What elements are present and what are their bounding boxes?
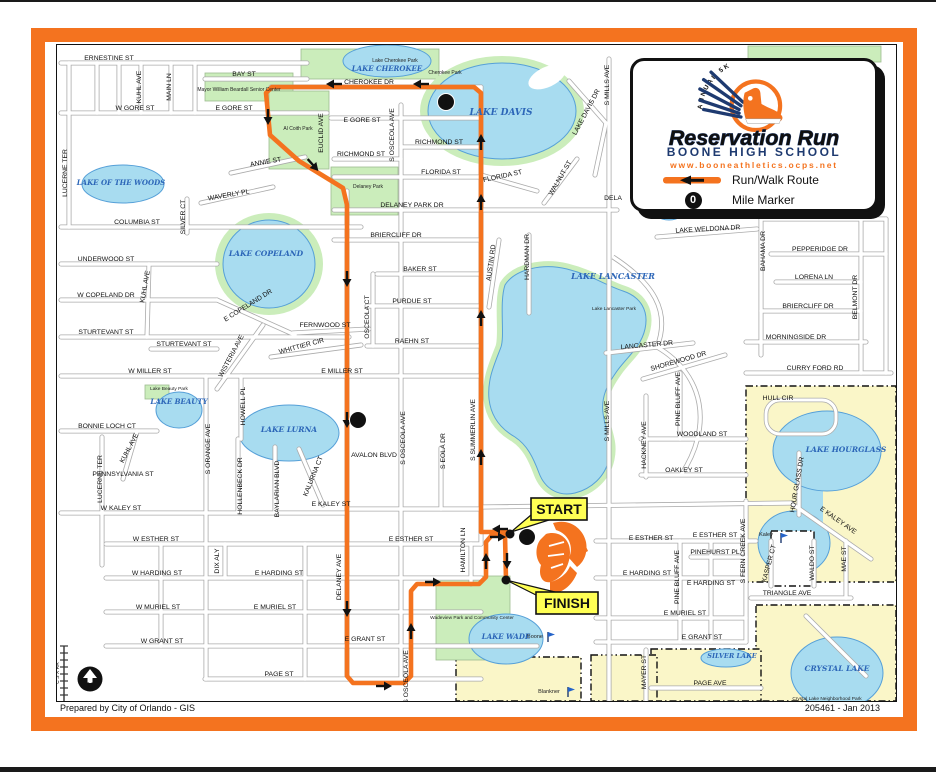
street-label: S ORANGE AVE [205, 423, 212, 474]
svg-text:Blankner: Blankner [538, 689, 560, 695]
street-label: PAGE AVE [694, 680, 727, 687]
trojan-mascot-icon [536, 522, 588, 594]
street-label: HARDMAN DR [524, 234, 531, 280]
street-label: BAHAMA DR [760, 231, 767, 271]
street-label: WALDO ST [809, 545, 816, 580]
street-label: PINE BLUFF AVE [674, 550, 681, 604]
street-label: Al Coith Park [283, 126, 313, 132]
street-label: W ESTHER ST [133, 536, 179, 543]
street-label: Mayor William Beardall Senior Center [197, 87, 281, 93]
street-label: DELA [604, 195, 622, 202]
street-label: KUHL AVE [136, 70, 143, 103]
street-label: S MILLS AVE [604, 64, 611, 105]
street-label: HOLLENBECK DR [237, 457, 244, 515]
svg-text:1: 1 [443, 98, 449, 109]
street-label: OSCEOLA CT [364, 295, 371, 338]
street-label: FLORIDA ST [421, 169, 461, 176]
street-label: RICHMOND ST [337, 151, 385, 158]
street-label: E MURIEL ST [664, 610, 706, 617]
street-label: COLUMBIA ST [114, 219, 160, 226]
street-label: E HARDING ST [255, 570, 303, 577]
footer-credit: Prepared by City of Orlando - GIS [60, 703, 195, 713]
street-label: STURTEVANT ST [78, 329, 133, 336]
street-label: FERNWOOD ST [300, 322, 351, 329]
street-label: E ESTHER ST [693, 532, 738, 539]
street-label: E MURIEL ST [254, 604, 296, 611]
svg-text:3: 3 [524, 533, 530, 544]
street-label: Lake Lancaster Park [592, 306, 637, 312]
street-label: DELANEY PARK DR [380, 202, 443, 209]
street-label: MAE ST [841, 546, 848, 571]
route-direction-arrow [477, 310, 486, 326]
svg-text:START: START [536, 501, 582, 517]
street-label: ANTIGUA DR [803, 211, 845, 218]
street-label: PINEHURST PL [690, 549, 740, 556]
street-label: W MILLER ST [128, 368, 171, 375]
legend-route-label: Run/Walk Route [732, 173, 819, 187]
street-label: TRIANGLE AVE [763, 590, 812, 597]
logo-school-name: BOONE HIGH SCHOOL [667, 145, 842, 159]
street-label: E HARDING ST [623, 570, 671, 577]
street-label: OAKLEY ST [665, 467, 703, 474]
route-direction-arrow [343, 601, 352, 617]
street-label: RAEHN ST [395, 338, 429, 345]
street-label: RICHMOND ST [415, 139, 463, 146]
street-label: LUCERNE TER [62, 149, 69, 197]
street-label: BAYLARIAN BLVD [274, 461, 281, 518]
street-label: E GRANT ST [345, 636, 386, 643]
street-label: LUCERNE TER [97, 455, 104, 503]
street-label: S SUMMERLIN AVE [470, 399, 477, 461]
route-direction-arrow [477, 449, 486, 465]
street-label: ERNESTINE ST [84, 55, 133, 62]
street-label: EUCLID AVE [318, 113, 325, 153]
street-label: DELANEY AVE [336, 553, 343, 600]
legend-marker-label: Mile Marker [732, 193, 795, 207]
lake-label: LAKE LANCASTER [570, 271, 655, 281]
svg-text:Kaley: Kaley [759, 532, 773, 538]
street-label: W MURIEL ST [136, 604, 180, 611]
street-label: S EOLA DR [440, 433, 447, 469]
street-label: CHEROKEE DR [344, 79, 394, 86]
street-label: HOWELL PL [240, 386, 247, 425]
street-label: BAKER ST [403, 266, 437, 273]
street-label: E GORE ST [215, 105, 252, 112]
street-label: WALNUT ST [548, 160, 574, 197]
svg-text:C S X RR: C S X RR [57, 662, 61, 684]
route-endpoint-dot [506, 530, 515, 539]
page-bottom-bar [0, 767, 936, 772]
street-label: S FERN CREEK AVE [740, 518, 747, 583]
street-label: W KALEY ST [101, 505, 142, 512]
legend-marker-row: 0 Mile Marker [654, 191, 854, 209]
legend-box: BHSAA ANNUAL 5K Reservation Run BOONE HI… [630, 58, 878, 212]
street-label: WAVERLY PL [207, 188, 250, 202]
north-arrow-icon: N [78, 667, 103, 692]
street-label: HAMILTON LN [460, 527, 467, 572]
street-label: BRIERCLIFF DR [782, 303, 833, 310]
page-top-line [0, 0, 936, 2]
street-label: E GRANT ST [682, 634, 723, 641]
lake-label: LAKE BEAUTY [149, 397, 208, 406]
route-direction-arrow [343, 271, 352, 287]
street-label: E ESTHER ST [629, 535, 674, 542]
street-label: DIX ALY [214, 548, 221, 574]
legend-route-row: Run/Walk Route [654, 172, 854, 190]
street-label: PURDUE ST [392, 298, 431, 305]
svg-text:N: N [87, 681, 94, 691]
svg-text:2: 2 [355, 416, 361, 427]
route-line-icon [654, 173, 732, 187]
street-label: E GORE ST [343, 117, 380, 124]
lake-label: LAKE LURNA [260, 425, 317, 434]
street-label: STURTEVANT ST [156, 341, 211, 348]
street-label: PEPPERIDGE DR [792, 246, 848, 253]
lake-label: LAKE WADE [481, 632, 531, 641]
lake-label: LAKE OF THE WOODS [76, 178, 166, 187]
street-label: CURRY FORD RD [787, 365, 844, 372]
footer-docid: 205461 - Jan 2013 [805, 703, 880, 713]
street-label: Delaney Park [353, 184, 384, 190]
logo-url: www.booneathletics.ocps.net [670, 160, 838, 170]
mile-marker-icon: 0 [685, 192, 702, 209]
street-label: WOODLAND ST [677, 431, 728, 438]
street-label: S MILLS AVE [604, 400, 611, 441]
street-label: W COPELAND DR [77, 292, 134, 299]
street-label: HACKNEY AVE [641, 421, 648, 469]
street-label: Crystal Lake Neighborhood Park [792, 696, 862, 701]
lake-lancaster [489, 267, 646, 494]
street-label: MAIN LN [166, 73, 173, 101]
school-flag-icon [548, 632, 555, 642]
street-label: E KALEY ST [312, 501, 351, 508]
street-label: W HARDING ST [132, 570, 182, 577]
street-label: S OSCEOLA AVE [400, 411, 407, 465]
route-endpoint-dot [502, 576, 511, 585]
street-label: BAY ST [232, 71, 256, 78]
lake-label: LAKE HOURGLASS [805, 445, 887, 454]
lake-label: LAKE COPELAND [228, 249, 304, 258]
street-label: S OSCEOLA AVE [403, 650, 410, 701]
street-label: UNDERWOOD ST [78, 256, 135, 263]
street-label: E MILLER ST [321, 368, 363, 375]
street-label: PAGE ST [265, 671, 294, 678]
lake-label: LAKE CHEROKEE [351, 64, 423, 73]
street-label: PENNSYLVANIA ST [92, 471, 153, 478]
svg-text:FINISH: FINISH [544, 595, 590, 611]
street-label: PINE BLUFF AVE [675, 372, 682, 426]
lake-label: LAKE DAVIS [469, 108, 533, 118]
street-label: LORENA LN [795, 274, 833, 281]
street-label: MORNINGSIDE DR [766, 334, 827, 341]
street-label: BRIERCLIFF DR [370, 232, 421, 239]
street-label: S OSCEOLA AVE [389, 108, 396, 162]
street-label: E ESTHER ST [389, 536, 434, 543]
street-label: W GORE ST [116, 105, 155, 112]
route-direction-arrow [482, 553, 491, 569]
lake-label: CRYSTAL LAKE [805, 664, 870, 673]
street-label: BONNIE LOCH CT [78, 423, 136, 430]
street-label: BELMONT DR [852, 275, 859, 320]
street-label: W GRANT ST [141, 638, 184, 645]
street-label: Cherokee Park [428, 70, 462, 76]
lake-label: SILVER LAKE [707, 652, 757, 660]
street-label: SILVER CT [180, 200, 187, 235]
street-label: Wadeview Park and Community Center [430, 615, 514, 621]
street-label: E HARDING ST [687, 580, 735, 587]
route-direction-arrow [407, 623, 416, 639]
street-label: Lake Beauty Park [150, 386, 188, 392]
reservation-run-logo: BHSAA ANNUAL 5K Reservation Run [646, 61, 862, 151]
street-label: MAYER ST [641, 655, 648, 689]
street-label: HULL CIR [763, 395, 794, 402]
kaley-school-block [771, 531, 814, 586]
street-label: AVALON BLVD [351, 452, 397, 459]
